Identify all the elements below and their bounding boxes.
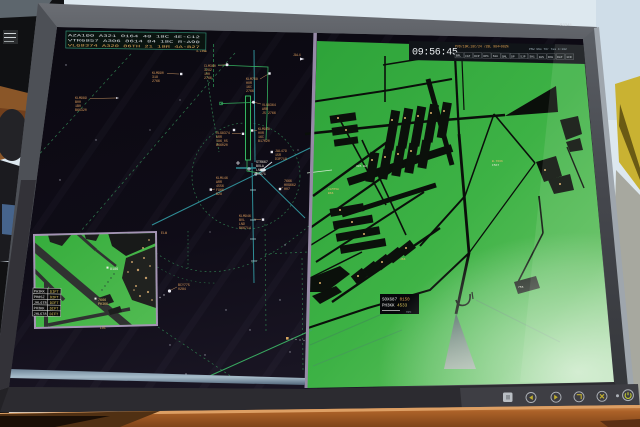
svg-text:D3P718: D3P718 [275,157,287,161]
svg-text:B66: B66 [328,192,334,195]
svg-text:B17020: B17020 [258,139,270,143]
svg-text:LOC: LOC [100,326,106,330]
svg-text:SJP: SJP [520,56,525,59]
svg-text:B.7666: B.7666 [492,160,503,163]
svg-text:BRL: BRL [456,55,461,58]
svg-text:DCH: DCH [548,56,553,59]
svg-text:4-LINE: 4-LINE [196,50,207,53]
svg-text:F0971: F0971 [256,172,266,176]
svg-text:B28: B28 [216,192,222,196]
svg-text:0284: 0284 [178,287,186,291]
svg-text:8186: 8186 [110,268,118,272]
svg-text:PVD/19R,18C/24 /28L 984+982%: PVD/19R,18C/24 /28L 984+982% [455,45,509,49]
svg-text:PH3KK: PH3KK [98,303,109,307]
svg-text:J66: J66 [400,258,406,261]
svg-text:305 B2: 305 B2 [356,165,367,168]
svg-text:DIFT: DIFT [49,313,59,317]
svg-text:B66714: B66714 [239,226,251,230]
svg-text:JAL4: JAL4 [293,53,301,57]
svg-text:2766: 2766 [152,79,160,83]
svg-text:CLM758: CLM758 [328,188,339,191]
svg-text:CAT: CAT [465,55,470,58]
svg-text:J5 2766: J5 2766 [262,111,276,115]
svg-text:DP: DP [511,55,515,58]
svg-text:F5K7: F5K7 [492,164,499,167]
svg-text:09:56:45: 09:56:45 [412,48,458,59]
svg-text:H07: H07 [284,187,290,191]
svg-text:ELW: ELW [161,231,167,235]
svg-text:B66320: B66320 [75,108,87,112]
svg-text:JHL678: JHL678 [33,313,46,317]
svg-text:SML: SML [502,55,507,58]
svg-text:2766: 2766 [246,89,254,93]
svg-text:1US: 1US [539,56,544,59]
svg-text:DCP: DCP [474,55,479,58]
svg-text:2766: 2766 [204,76,212,80]
svg-text:P2341: P2341 [560,24,573,28]
svg-text:S1A: S1A [493,55,498,58]
svg-text:B66020: B66020 [216,143,228,147]
svg-text:SH1: SH1 [530,56,535,59]
svg-text:DP1: DP1 [484,55,489,58]
